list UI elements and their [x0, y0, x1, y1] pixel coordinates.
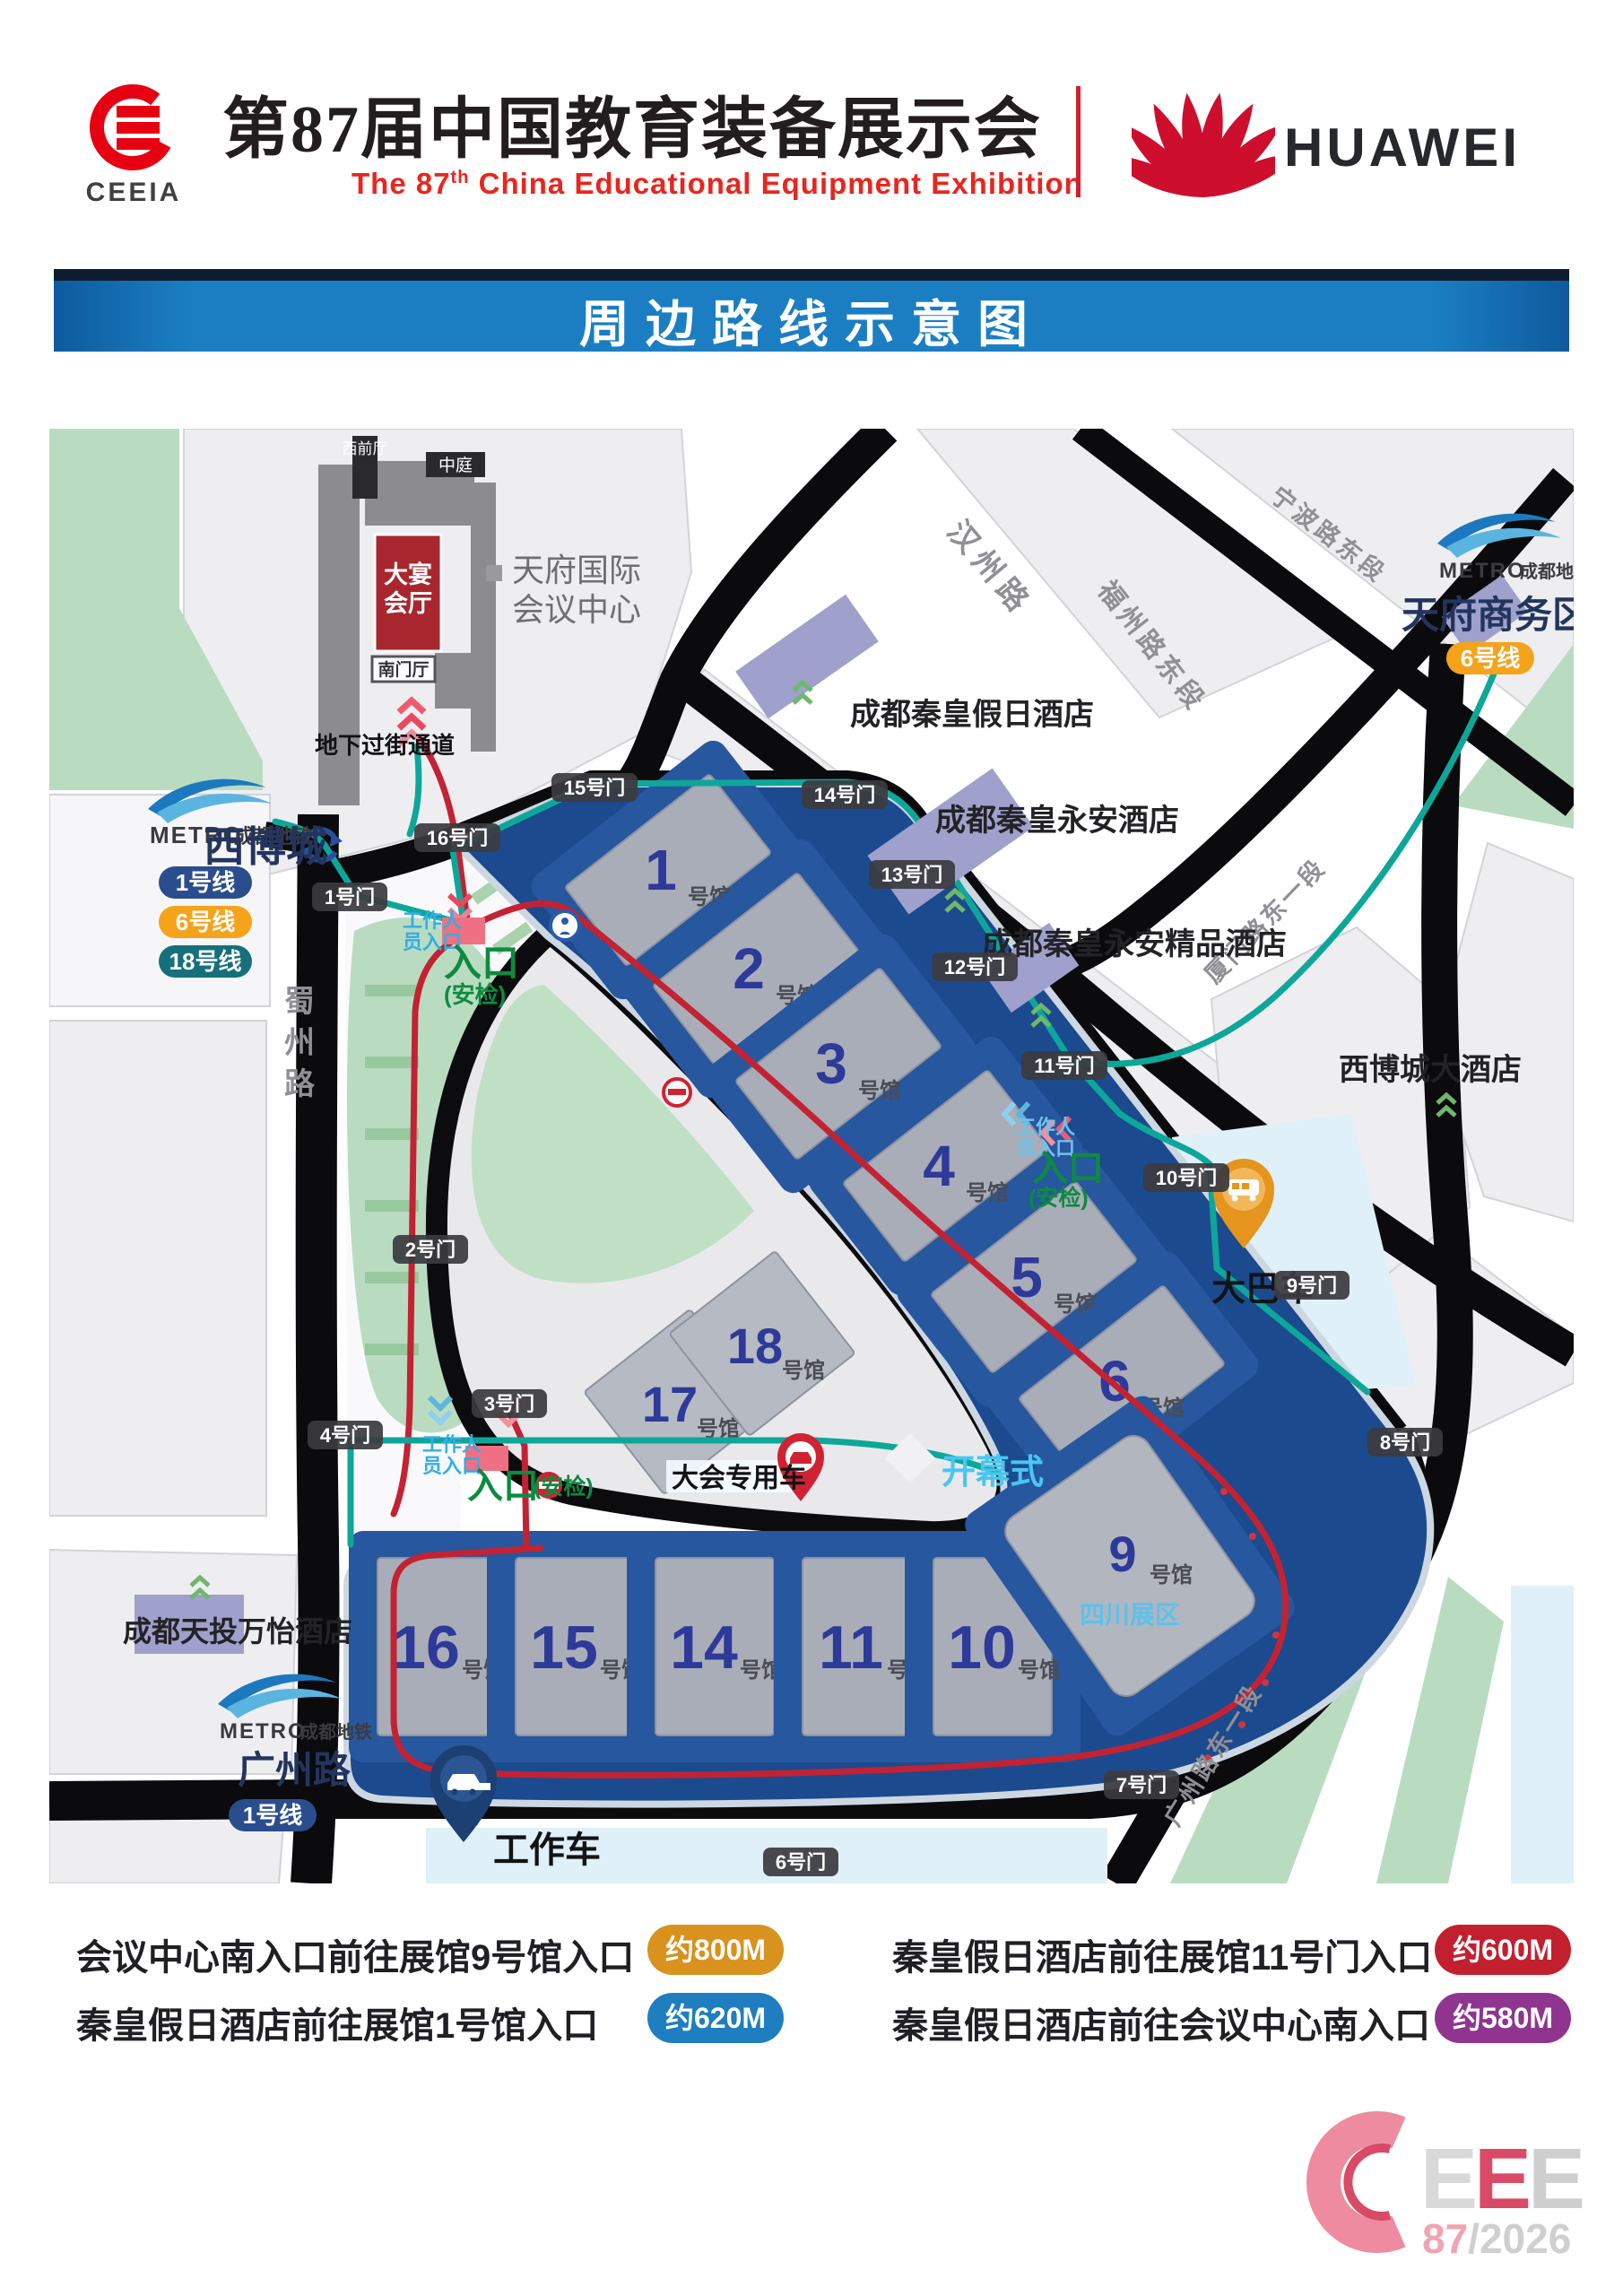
hall-number: 3 [815, 1031, 847, 1096]
metro-line-label: 6号线 [1461, 645, 1520, 672]
legend-route-text: 会议中心南入口前往展馆9号馆入口 [76, 1928, 634, 1980]
hall-suffix: 号馆 [782, 1358, 825, 1383]
hall-number: 9 [1108, 1526, 1136, 1582]
gate-label: 7号门 [1116, 1774, 1167, 1796]
gate-label: 1号门 [325, 886, 375, 909]
entrance-label: 入口 [1032, 1149, 1104, 1188]
metro-line-label: 18号线 [169, 948, 242, 975]
ceee-logo: E E E 87/2026 [1293, 2099, 1589, 2269]
svg-text:成都地铁: 成都地铁 [300, 1721, 372, 1743]
security-label: (安检) [444, 981, 506, 1008]
hall-number: 1 [645, 838, 677, 902]
svg-text:METRO: METRO [220, 1719, 307, 1744]
route-dot [1249, 1533, 1256, 1540]
event-car-label: 大会专用车 [672, 1463, 806, 1493]
ceee-letter: E [1528, 2131, 1585, 2227]
ceee-letter: E [1474, 2131, 1532, 2227]
legend-distance-badge: 约800M [647, 1925, 784, 1975]
legend-route-text: 秦皇假日酒店前往展馆11号门入口 [892, 1928, 1432, 1980]
gate-label: 13号门 [881, 864, 942, 886]
gate-label: 10号门 [1156, 1167, 1217, 1189]
legend-distance-badge: 约580M [1435, 1993, 1571, 2043]
hotel-label: 成都秦皇假日酒店 [850, 698, 1094, 732]
hall-number: 11 [819, 1613, 883, 1682]
hall-number: 4 [923, 1134, 955, 1198]
gate-label: 12号门 [944, 956, 1005, 978]
exhibition-title-cn: 第87届中国教育装备展示会 [222, 75, 1047, 171]
gate-label: 15号门 [564, 777, 625, 799]
ceeia-logo [84, 79, 181, 176]
gate-label: 11号门 [1034, 1055, 1094, 1077]
route-map: 1号馆2号馆3号馆4号馆5号馆6号馆17号馆18号馆16号馆15号馆14号馆11… [49, 429, 1574, 1883]
gate-label: 3号门 [484, 1393, 534, 1415]
metro-line-label: 1号线 [176, 869, 235, 896]
huawei-flower-icon [1132, 79, 1275, 204]
atrium-label: 中庭 [438, 456, 473, 475]
header-divider [1076, 86, 1081, 197]
ceee-letter: E [1420, 2131, 1478, 2227]
security-label: (安检) [534, 1474, 594, 1500]
hotel-label: 成都天投万怡酒店 [123, 1615, 352, 1648]
hall-suffix: 号馆 [1150, 1562, 1193, 1587]
underpass-label: 地下过街通道 [315, 732, 455, 759]
hall-suffix: 号馆 [858, 1078, 901, 1103]
gate-label: 2号门 [405, 1239, 456, 1261]
security-label: (安检) [1028, 1185, 1089, 1211]
legend-distance-badge: 约620M [647, 1993, 784, 2043]
hall-number: 10 [948, 1613, 1016, 1682]
parking-stripe [365, 1057, 419, 1068]
hotel-label: 成都秦皇永安酒店 [935, 804, 1179, 838]
poi-work-car [430, 1745, 497, 1842]
gate-label: 14号门 [814, 784, 875, 806]
opening-ceremony-label: 开幕式 [942, 1454, 1044, 1492]
gate-label: 9号门 [1287, 1274, 1337, 1297]
work-car-label: 工作车 [493, 1831, 601, 1870]
legend-route-text: 秦皇假日酒店前往会议中心南入口 [892, 1996, 1430, 2048]
gate-label: 6号门 [776, 1851, 826, 1874]
gate-label: 8号门 [1380, 1431, 1430, 1454]
banner-ribbon: 周边路线示意图 [54, 269, 1569, 352]
huawei-wordmark: HUAWEI [1284, 117, 1521, 178]
hall-suffix: 号馆 [1018, 1657, 1061, 1683]
legend-route-text: 秦皇假日酒店前往展馆1号馆入口 [76, 1996, 598, 2048]
entrance-label: 入口 [444, 942, 519, 984]
station-name: 西博城 [204, 823, 327, 870]
hall-number: 2 [733, 936, 765, 1001]
entrance-label: 入口 [467, 1466, 539, 1506]
hall-suffix: 号馆 [966, 1180, 1009, 1205]
poster-page: CEEIA 第87届中国教育装备展示会 The 87th China Educa… [0, 0, 1623, 2296]
parking-stripe [365, 985, 419, 996]
hall-number: 16 [392, 1613, 460, 1682]
hall-number: 18 [727, 1318, 783, 1374]
svg-text:METRO: METRO [1439, 559, 1526, 583]
hall-number: 15 [530, 1613, 598, 1682]
metro-line-label: 1号线 [243, 1802, 302, 1829]
west-foyer-label: 西前厅 [343, 440, 388, 457]
hall-number: 14 [670, 1613, 738, 1682]
sichuan-zone-label: 四川展区 [1080, 1601, 1180, 1629]
south-foyer-label: 南门厅 [378, 659, 429, 680]
metro-line-label: 6号线 [176, 909, 235, 935]
svg-text:成都地铁: 成都地铁 [1520, 561, 1574, 582]
legend-distance-badge: 约600M [1435, 1925, 1571, 1975]
station-name: 天府商务区 [1402, 594, 1574, 636]
hotel-label: 西博城大酒店 [1339, 1053, 1522, 1087]
page-title: 周边路线示意图 [54, 284, 1569, 357]
road-shuzhou: 蜀州路 [284, 985, 316, 1101]
hotel-label: 成都秦皇永安精品酒店 [982, 927, 1287, 961]
gate-label: 4号门 [320, 1424, 370, 1447]
ceeia-acronym: CEEIA [84, 178, 183, 208]
station-name: 广州路 [238, 1749, 352, 1791]
exhibition-title-en: The 87th China Educational Equipment Exh… [352, 167, 1083, 201]
ceee-edition: 87/2026 [1422, 2215, 1571, 2262]
gate-label: 16号门 [427, 827, 488, 849]
hall-number: 17 [642, 1376, 698, 1432]
